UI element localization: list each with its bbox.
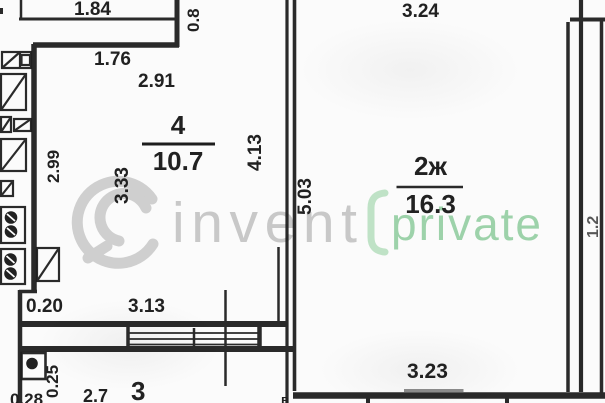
room3-number: 3: [131, 378, 145, 403]
room2zh-number: 2ж: [397, 153, 464, 179]
dim-room2zh-height-503: 5.03: [296, 169, 315, 215]
dim-cut-wall-letter: в: [281, 393, 289, 403]
dim-balcony-width: 1.84: [74, 0, 111, 19]
dim-room3-left-025: 0.25: [44, 350, 61, 398]
dim-niche-020: 0.20: [26, 297, 63, 316]
dim-room4-width: 2.91: [138, 72, 175, 91]
dim-cut-bottom-left: 0.28: [10, 391, 43, 403]
room4-area: 10.7: [138, 148, 218, 174]
stove-symbols: [1, 207, 25, 284]
room4-number: 4: [138, 112, 218, 138]
dim-room4-height-333: 3.33: [113, 154, 132, 204]
dim-room2zh-width-top: 3.24: [402, 2, 439, 21]
dim-cut-right-edge: 1.2: [586, 198, 602, 238]
dim-window-176: 1.76: [94, 50, 131, 69]
dim-wall-413: 4.13: [246, 125, 265, 171]
room2zh-area: 16.3: [397, 191, 464, 217]
room3-fixture: [22, 353, 46, 379]
dim-cut-room3-height: 2.7: [83, 387, 108, 403]
dim-room4-bottom-313: 3.13: [128, 297, 165, 316]
dim-wall-left-299: 2.99: [45, 141, 62, 183]
dim-balcony-depth: 0.8: [185, 0, 202, 32]
floor-plan: invent private: [0, 0, 605, 403]
dim-room2zh-width-bottom: 3.23: [407, 361, 448, 382]
